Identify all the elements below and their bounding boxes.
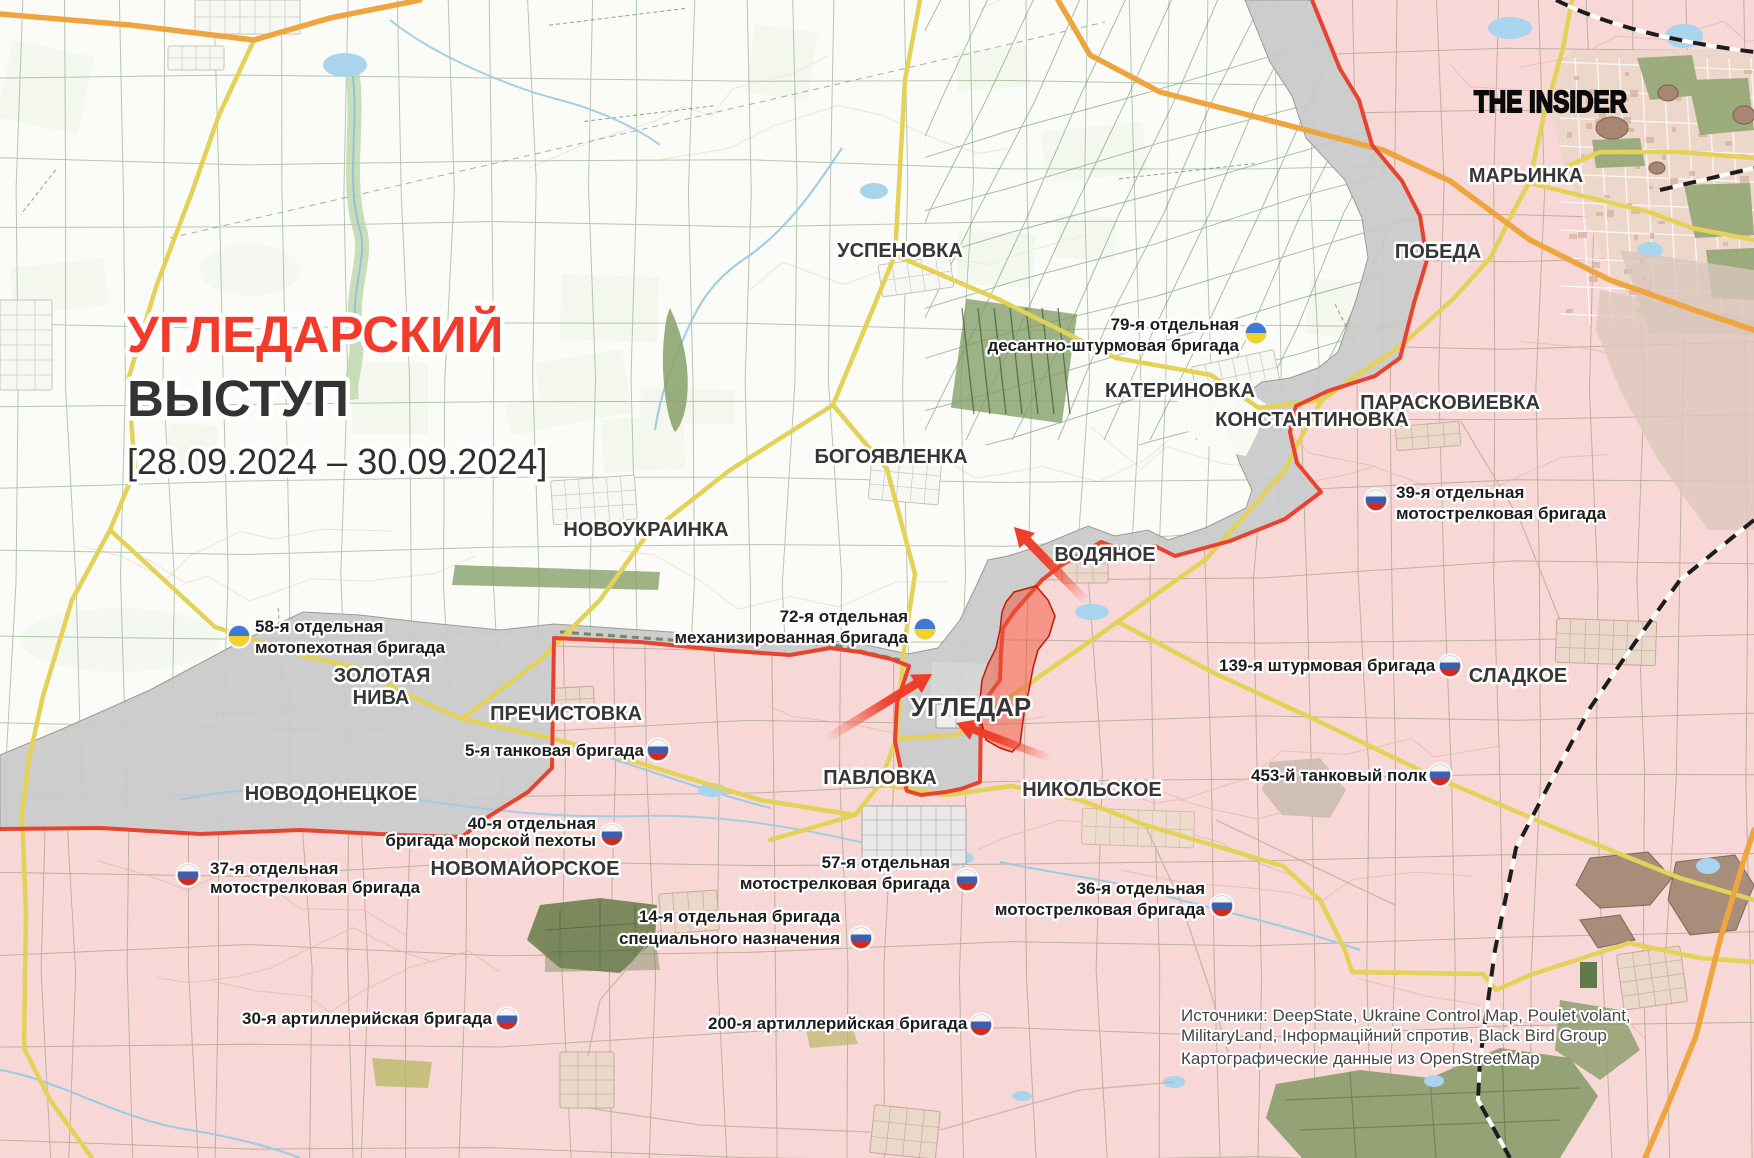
svg-text:УСПЕНОВКА: УСПЕНОВКА <box>837 240 963 262</box>
svg-text:THE INSIDER: THE INSIDER <box>1474 84 1627 119</box>
svg-text:37-я отдельная: 37-я отдельная <box>210 859 338 878</box>
svg-text:79-я отдельная: 79-я отдельная <box>1111 315 1239 334</box>
svg-text:десантно-штурмовая бригада: десантно-штурмовая бригада <box>987 336 1239 355</box>
svg-text:58-я отдельная: 58-я отдельная <box>255 617 383 636</box>
svg-text:мотострелковая бригада: мотострелковая бригада <box>1396 504 1607 523</box>
svg-text:Картографические данные из Ope: Картографические данные из OpenStreetMap <box>1181 1049 1540 1068</box>
svg-text:[28.09.2024 – 30.09.2024]: [28.09.2024 – 30.09.2024] <box>127 441 547 482</box>
svg-text:14-я отдельная бригада: 14-я отдельная бригада <box>639 907 841 926</box>
svg-text:Источники: DeepState, Ukraine: Источники: DeepState, Ukraine Control Ma… <box>1181 1006 1631 1025</box>
svg-text:MilitaryLand, Інформаційний сп: MilitaryLand, Інформаційний спротив, Bla… <box>1181 1026 1607 1045</box>
svg-text:УГЛЕДАР: УГЛЕДАР <box>911 692 1032 722</box>
svg-text:ПАВЛОВКА: ПАВЛОВКА <box>823 767 936 789</box>
svg-text:КАТЕРИНОВКА: КАТЕРИНОВКА <box>1105 380 1255 402</box>
svg-text:НИКОЛЬСКОЕ: НИКОЛЬСКОЕ <box>1022 779 1162 801</box>
svg-text:139-я штурмовая бригада: 139-я штурмовая бригада <box>1219 656 1436 675</box>
svg-text:НОВОМАЙОРСКОЕ: НОВОМАЙОРСКОЕ <box>431 856 620 880</box>
svg-text:БОГОЯВЛЕНКА: БОГОЯВЛЕНКА <box>814 446 967 468</box>
svg-text:НОВОДОНЕЦКОЕ: НОВОДОНЕЦКОЕ <box>245 783 418 805</box>
svg-text:39-я отдельная: 39-я отдельная <box>1396 483 1524 502</box>
svg-text:ПРЕЧИСТОВКА: ПРЕЧИСТОВКА <box>490 703 642 725</box>
svg-text:специального назначения: специального назначения <box>619 929 840 948</box>
svg-text:36-я отдельная: 36-я отдельная <box>1077 879 1205 898</box>
svg-text:механизированная бригада: механизированная бригада <box>674 628 908 647</box>
svg-text:ВОДЯНОЕ: ВОДЯНОЕ <box>1054 544 1155 566</box>
svg-text:ПОБЕДА: ПОБЕДА <box>1395 241 1481 263</box>
svg-text:УГЛЕДАРСКИЙ: УГЛЕДАРСКИЙ <box>127 305 503 363</box>
svg-text:5-я танковая бригада: 5-я танковая бригада <box>465 741 644 760</box>
svg-text:200-я артиллерийская бригада: 200-я артиллерийская бригада <box>708 1014 968 1033</box>
svg-text:ВЫСТУП: ВЫСТУП <box>127 370 349 427</box>
svg-text:мотопехотная бригада: мотопехотная бригада <box>255 638 446 657</box>
svg-text:30-я артиллерийская бригада: 30-я артиллерийская бригада <box>242 1009 492 1028</box>
svg-text:мотострелковая бригада: мотострелковая бригада <box>740 874 951 893</box>
svg-text:453-й танковый полк: 453-й танковый полк <box>1251 766 1427 785</box>
svg-text:мотострелковая бригада: мотострелковая бригада <box>995 900 1206 919</box>
svg-text:НОВОУКРАИНКА: НОВОУКРАИНКА <box>563 519 728 541</box>
svg-text:бригада морской пехоты: бригада морской пехоты <box>385 831 596 850</box>
svg-text:ПАРАСКОВИЕВКА: ПАРАСКОВИЕВКА <box>1360 392 1540 414</box>
svg-text:мотострелковая бригада: мотострелковая бригада <box>210 878 421 897</box>
svg-text:ЗОЛОТАЯ: ЗОЛОТАЯ <box>334 665 431 687</box>
svg-text:72-я отдельная: 72-я отдельная <box>780 607 908 626</box>
svg-text:57-я отдельная: 57-я отдельная <box>822 853 950 872</box>
svg-text:НИВА: НИВА <box>353 687 410 709</box>
svg-text:МАРЬИНКА: МАРЬИНКА <box>1469 165 1583 187</box>
svg-text:СЛАДКОЕ: СЛАДКОЕ <box>1469 665 1568 687</box>
